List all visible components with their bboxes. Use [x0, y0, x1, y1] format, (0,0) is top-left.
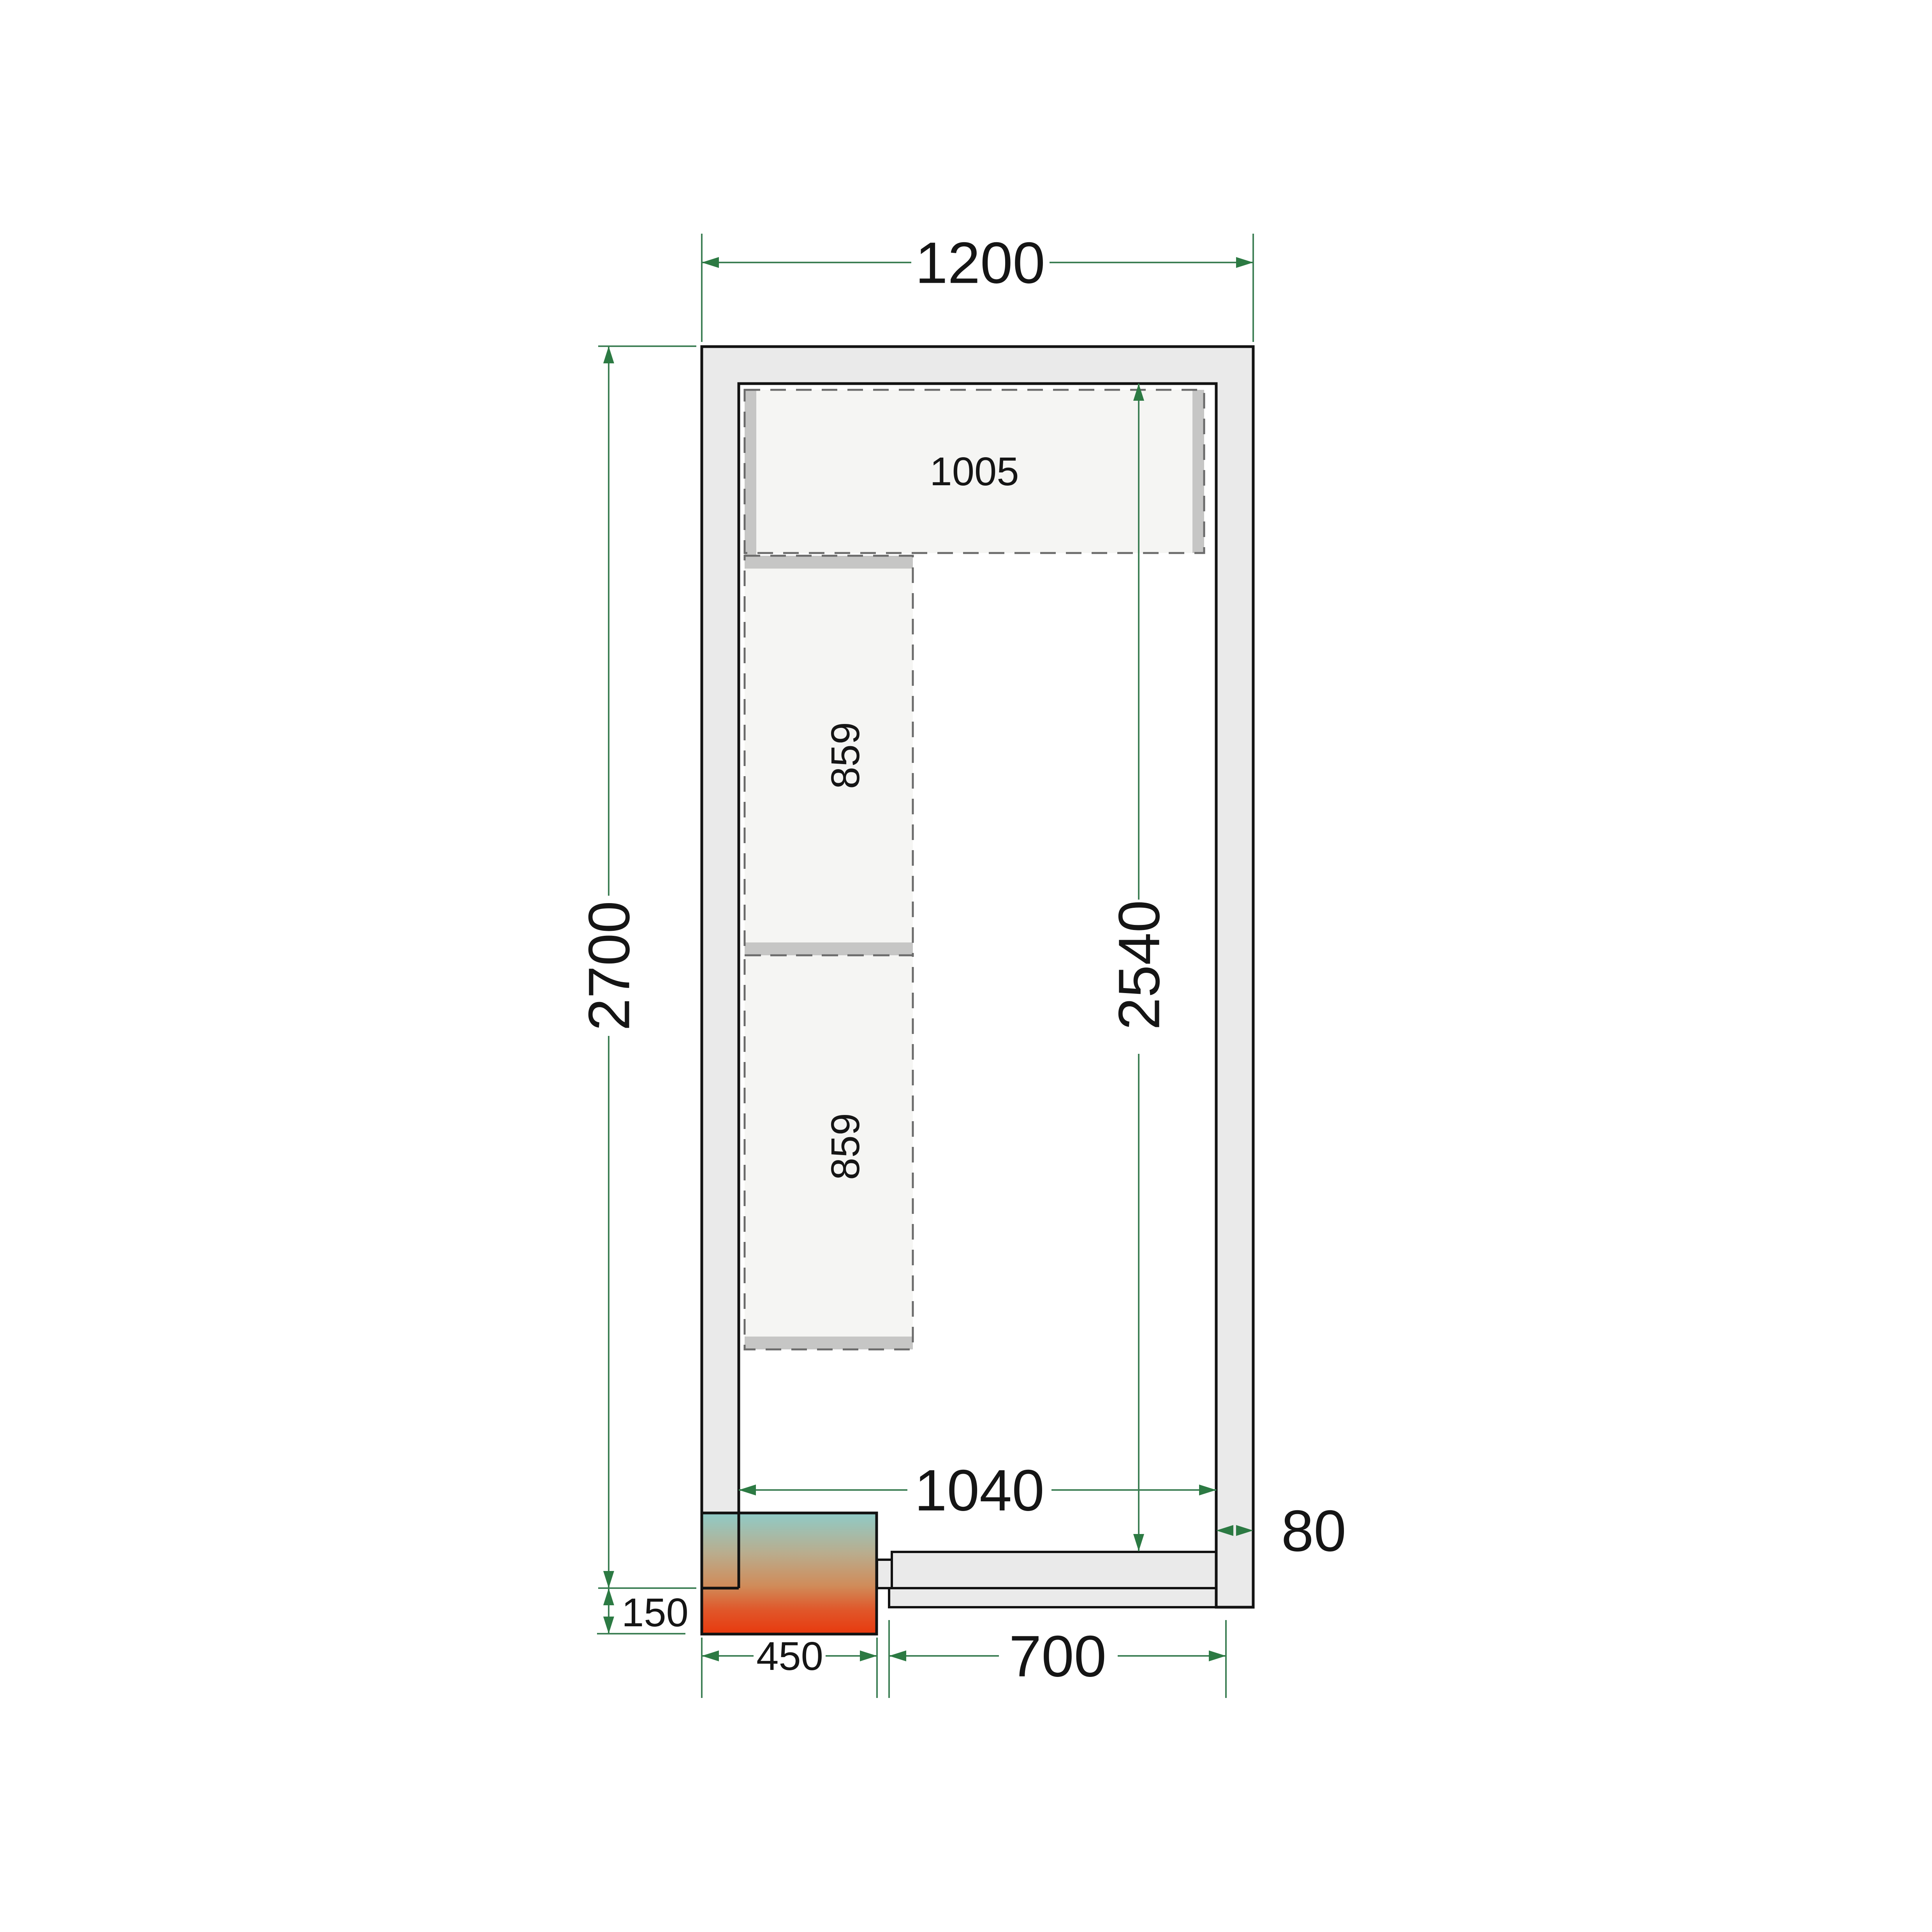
label-left-shelf-section1: 859: [823, 722, 868, 789]
label-outer-width: 1200: [915, 230, 1045, 296]
arrow-2700-top: [603, 346, 614, 363]
door-panel-in-wall: [892, 1552, 1216, 1588]
left-shelf-bar-middle: [745, 942, 913, 955]
arrow-1040-left: [739, 1485, 756, 1495]
arrow-1200-right: [1236, 257, 1253, 268]
arrow-450-right: [860, 1650, 877, 1661]
label-top-shelf: 1005: [930, 449, 1019, 494]
cold-room-plan-drawing: 1200270025401040804507001501005859859: [0, 0, 1932, 1932]
arrow-1200-left: [702, 257, 719, 268]
door-leaf-outside: [889, 1588, 1226, 1607]
arrow-1040-right: [1199, 1485, 1216, 1495]
plan-primitives-group: 1200270025401040804507001501005859859: [576, 230, 1346, 1698]
label-unit-protrusion: 150: [622, 1590, 689, 1635]
arrow-2540-bottom: [1133, 1534, 1144, 1551]
top-shelf-end-bar-left: [745, 390, 756, 556]
label-inner-width: 1040: [914, 1458, 1044, 1523]
arrow-2700-bottom: [603, 1571, 614, 1588]
arrow-150-bottom: [603, 1617, 614, 1634]
arrow-150-top: [603, 1588, 614, 1605]
label-inner-height: 2540: [1106, 900, 1172, 1030]
label-outer-height: 2700: [576, 901, 642, 1031]
top-shelf-end-bar-right: [1192, 390, 1204, 553]
floor-plan-canvas: 1200270025401040804507001501005859859: [0, 0, 1932, 1932]
label-left-shelf-section2: 859: [823, 1113, 868, 1180]
left-shelf-bar-bottom: [745, 1337, 913, 1349]
label-door-opening: 700: [1009, 1624, 1106, 1689]
arrow-700-right: [1209, 1650, 1226, 1661]
arrow-450-left: [702, 1650, 719, 1661]
cooling-unit: [702, 1513, 877, 1634]
left-shelf-bar-top: [745, 556, 913, 569]
arrow-700-left: [889, 1650, 906, 1661]
label-unit-width: 450: [756, 1634, 823, 1678]
label-wall-thickness: 80: [1281, 1498, 1346, 1564]
